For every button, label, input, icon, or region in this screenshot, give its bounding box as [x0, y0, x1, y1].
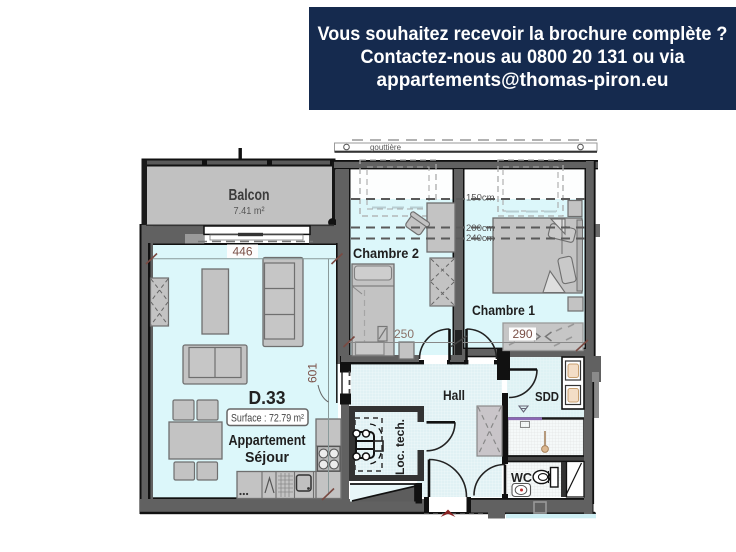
svg-text:601: 601 [306, 363, 320, 383]
svg-text:WC: WC [511, 470, 533, 485]
svg-text:Chambre 2: Chambre 2 [353, 246, 419, 261]
svg-text:Balcon: Balcon [229, 187, 270, 204]
svg-text:240cm: 240cm [466, 233, 495, 244]
svg-text:7.41 m²: 7.41 m² [234, 206, 266, 217]
svg-text:Hall: Hall [443, 387, 465, 403]
svg-text:250: 250 [394, 327, 414, 341]
svg-text:gouttière: gouttière [370, 143, 402, 152]
svg-text:D.33: D.33 [249, 388, 286, 408]
svg-text:Chambre 1: Chambre 1 [472, 303, 535, 318]
svg-text:Surface : 72.79 m²: Surface : 72.79 m² [231, 413, 304, 425]
svg-text:Séjour: Séjour [245, 449, 289, 466]
svg-text:SDD: SDD [535, 389, 559, 404]
svg-text:290: 290 [512, 327, 532, 341]
svg-text:446: 446 [232, 245, 252, 259]
svg-text:150cm: 150cm [466, 193, 495, 204]
svg-text:Appartement: Appartement [229, 432, 306, 449]
svg-text:Loc. tech.: Loc. tech. [393, 419, 407, 475]
